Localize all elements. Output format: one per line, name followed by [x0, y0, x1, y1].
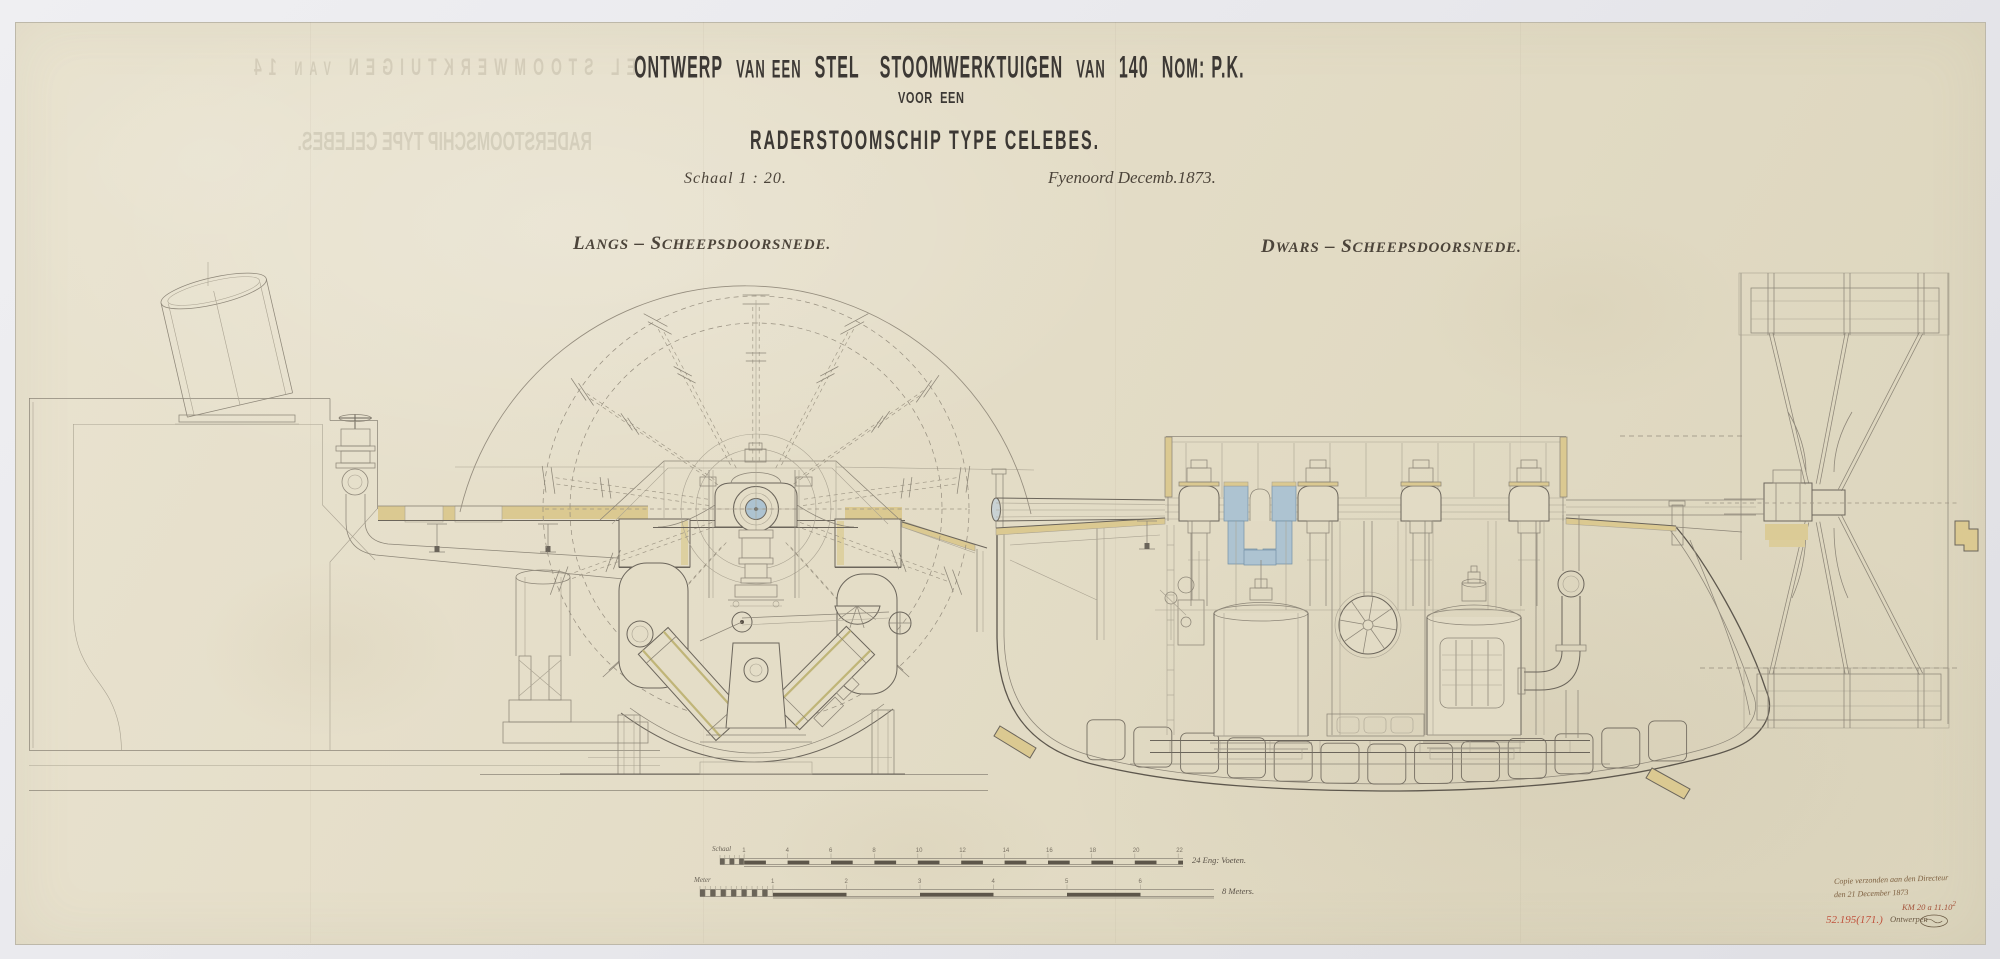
- svg-text:3: 3: [918, 879, 922, 885]
- svg-text:16: 16: [1046, 848, 1053, 854]
- svg-text:6: 6: [1139, 879, 1143, 885]
- svg-text:14: 14: [1003, 848, 1010, 854]
- svg-text:10: 10: [916, 848, 923, 854]
- svg-text:5: 5: [1065, 879, 1069, 885]
- svg-text:22: 22: [1176, 848, 1183, 854]
- svg-text:4: 4: [786, 848, 790, 854]
- svg-text:2: 2: [845, 879, 849, 885]
- svg-text:20: 20: [1133, 848, 1140, 854]
- svg-text:1: 1: [771, 879, 775, 885]
- svg-text:1: 1: [742, 848, 746, 854]
- svg-text:8: 8: [872, 848, 876, 854]
- svg-text:12: 12: [959, 848, 966, 854]
- svg-text:6: 6: [829, 848, 833, 854]
- svg-text:4: 4: [992, 879, 996, 885]
- svg-text:18: 18: [1089, 848, 1096, 854]
